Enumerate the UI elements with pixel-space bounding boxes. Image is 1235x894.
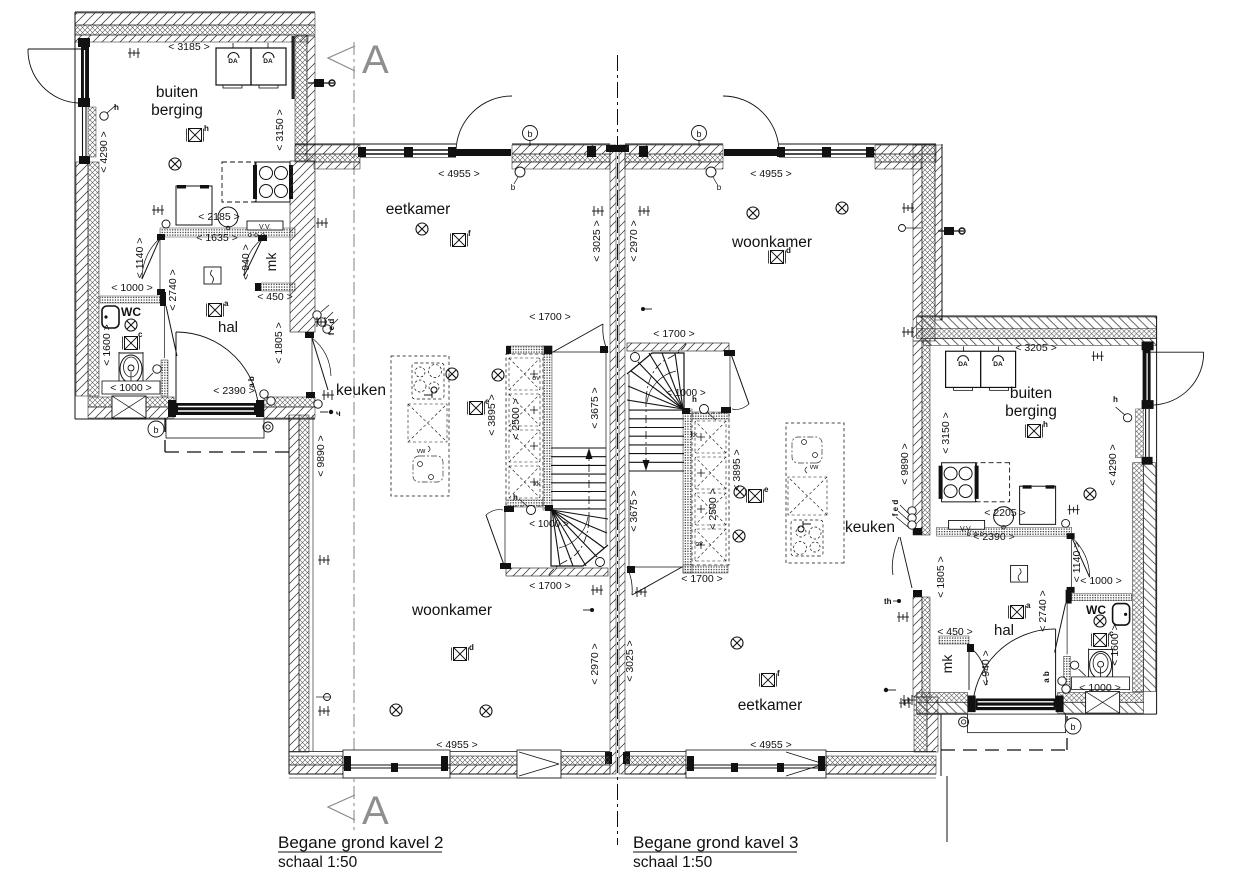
- svg-text:berging: berging: [151, 102, 203, 119]
- svg-text:< 3025 >: < 3025 >: [591, 220, 603, 261]
- svg-text:< 1140 >: < 1140 >: [134, 238, 146, 279]
- svg-text:A: A: [362, 789, 389, 833]
- svg-text:< 4290 >: < 4290 >: [1107, 444, 1119, 485]
- svg-text:keuken: keuken: [336, 382, 386, 399]
- svg-text:< 1000 >: < 1000 >: [1080, 575, 1121, 587]
- svg-text:< 9890 >: < 9890 >: [315, 435, 327, 476]
- svg-text:< 1140 >: < 1140 >: [1071, 542, 1083, 583]
- svg-text:hal: hal: [218, 319, 238, 336]
- svg-text:< 1635 >: < 1635 >: [196, 232, 237, 244]
- svg-text:b: b: [696, 129, 701, 139]
- svg-text:d: d: [469, 643, 474, 652]
- svg-text:h: h: [1043, 420, 1048, 429]
- svg-text:vw: vw: [810, 464, 820, 471]
- svg-text:< 4955 >: < 4955 >: [750, 168, 791, 180]
- svg-text:< 1805 >: < 1805 >: [273, 322, 285, 363]
- svg-text:< 450 >: < 450 >: [257, 291, 293, 303]
- svg-text:< 1700 >: < 1700 >: [681, 573, 722, 585]
- svg-text:V.V.: V.V.: [259, 224, 271, 231]
- svg-text:< 2500 >: < 2500 >: [510, 398, 522, 439]
- svg-text:DA: DA: [958, 361, 968, 368]
- svg-text:< 2390 >: < 2390 >: [973, 531, 1014, 543]
- svg-text:< 3675 >: < 3675 >: [589, 387, 601, 428]
- svg-text:< 1700 >: < 1700 >: [529, 580, 570, 592]
- svg-text:< 3205 >: < 3205 >: [1015, 342, 1056, 354]
- svg-text:f: f: [468, 229, 471, 238]
- svg-text:< 2205 >: < 2205 >: [984, 507, 1025, 519]
- svg-text:< 3895 >: < 3895 >: [731, 449, 743, 490]
- svg-text:buiten: buiten: [156, 84, 198, 101]
- svg-text:V.V.: V.V.: [960, 526, 972, 533]
- svg-text:< 940 >: < 940 >: [980, 650, 992, 686]
- svg-text:b: b: [153, 425, 158, 435]
- svg-text:< 1600 >: < 1600 >: [101, 324, 113, 365]
- svg-text:h: h: [204, 124, 209, 133]
- svg-text:vw: vw: [417, 448, 427, 455]
- svg-text:< 3185 >: < 3185 >: [168, 41, 209, 53]
- svg-text:DA: DA: [228, 58, 238, 65]
- svg-text:< 1000 >: < 1000 >: [110, 382, 151, 394]
- svg-text:c: c: [138, 330, 143, 339]
- svg-text:< 1700 >: < 1700 >: [653, 328, 694, 340]
- svg-text:< 3150 >: < 3150 >: [274, 109, 286, 150]
- svg-text:< 2500 >: < 2500 >: [707, 488, 719, 529]
- svg-text:f e d: f e d: [891, 500, 900, 517]
- svg-text:< 3150 >: < 3150 >: [940, 412, 952, 453]
- svg-text:h: h: [1113, 395, 1118, 404]
- svg-text:b: b: [511, 183, 516, 192]
- svg-text:< 1805 >: < 1805 >: [935, 556, 947, 597]
- svg-text:woonkamer: woonkamer: [411, 602, 492, 619]
- svg-text:< 1000 >: < 1000 >: [1079, 682, 1120, 694]
- svg-text:b: b: [717, 183, 722, 192]
- svg-text:f: f: [777, 669, 780, 678]
- svg-text:WC: WC: [1086, 603, 1106, 617]
- svg-text:< 3025 >: < 3025 >: [624, 640, 636, 681]
- svg-text:< 1700 >: < 1700 >: [529, 311, 570, 323]
- svg-text:ч: ч: [336, 409, 341, 418]
- svg-text:A: A: [362, 38, 389, 82]
- svg-text:e: e: [764, 485, 769, 494]
- svg-text:< 9890 >: < 9890 >: [899, 443, 911, 484]
- svg-text:berging: berging: [1005, 403, 1057, 420]
- svg-text:< 1000 >: < 1000 >: [111, 282, 152, 294]
- svg-text:< 3675 >: < 3675 >: [628, 490, 640, 531]
- svg-text:ov: ov: [695, 541, 703, 548]
- svg-text:h: h: [114, 103, 119, 112]
- svg-text:< 1600 >: < 1600 >: [1109, 624, 1121, 665]
- svg-text:< 1000 >: < 1000 >: [666, 388, 706, 399]
- svg-text:b: b: [1070, 722, 1075, 732]
- svg-text:mk: mk: [939, 654, 955, 674]
- svg-text:a: a: [1026, 601, 1031, 610]
- svg-text:th: th: [884, 597, 892, 606]
- svg-text:b: b: [527, 129, 532, 139]
- svg-text:buiten: buiten: [1010, 385, 1052, 402]
- svg-text:< 2740 >: < 2740 >: [1037, 590, 1049, 631]
- svg-text:< 4955 >: < 4955 >: [436, 739, 477, 751]
- svg-text:< 4290 >: < 4290 >: [98, 131, 110, 172]
- svg-text:< 2185 >: < 2185 >: [198, 211, 239, 223]
- svg-text:< 2970 >: < 2970 >: [589, 643, 601, 684]
- svg-text:< 4955 >: < 4955 >: [750, 739, 791, 751]
- svg-text:eetkamer: eetkamer: [738, 697, 803, 714]
- svg-text:< 1000 >: < 1000 >: [529, 519, 569, 530]
- svg-text:woonkamer: woonkamer: [731, 234, 812, 251]
- svg-text:a b: a b: [1042, 671, 1051, 683]
- svg-text:Begane grond kavel 3: Begane grond kavel 3: [633, 833, 798, 852]
- svg-text:< 2970 >: < 2970 >: [628, 220, 640, 261]
- svg-text:DA: DA: [263, 58, 273, 65]
- svg-text:mk: mk: [263, 252, 279, 272]
- svg-text:< 4955 >: < 4955 >: [438, 168, 479, 180]
- svg-text:Begane grond kavel 2: Begane grond kavel 2: [278, 833, 443, 852]
- svg-text:f e d: f e d: [327, 319, 336, 336]
- svg-text:h: h: [513, 493, 518, 502]
- svg-text:eetkamer: eetkamer: [386, 201, 451, 218]
- svg-text:< 3895 >: < 3895 >: [486, 394, 498, 435]
- svg-text:hal: hal: [994, 622, 1014, 639]
- svg-text:schaal 1:50: schaal 1:50: [278, 854, 358, 871]
- svg-text:kk: kk: [691, 432, 699, 439]
- svg-text:a: a: [224, 299, 229, 308]
- svg-text:< 2740 >: < 2740 >: [167, 269, 179, 310]
- svg-text:DA: DA: [993, 361, 1003, 368]
- svg-text:schaal 1:50: schaal 1:50: [633, 854, 713, 871]
- svg-text:keuken: keuken: [845, 519, 895, 536]
- svg-text:kk: kk: [534, 481, 542, 488]
- svg-text:< 2390 >: < 2390 >: [213, 385, 254, 397]
- svg-text:WC: WC: [121, 305, 141, 319]
- svg-text:ov: ov: [532, 375, 540, 382]
